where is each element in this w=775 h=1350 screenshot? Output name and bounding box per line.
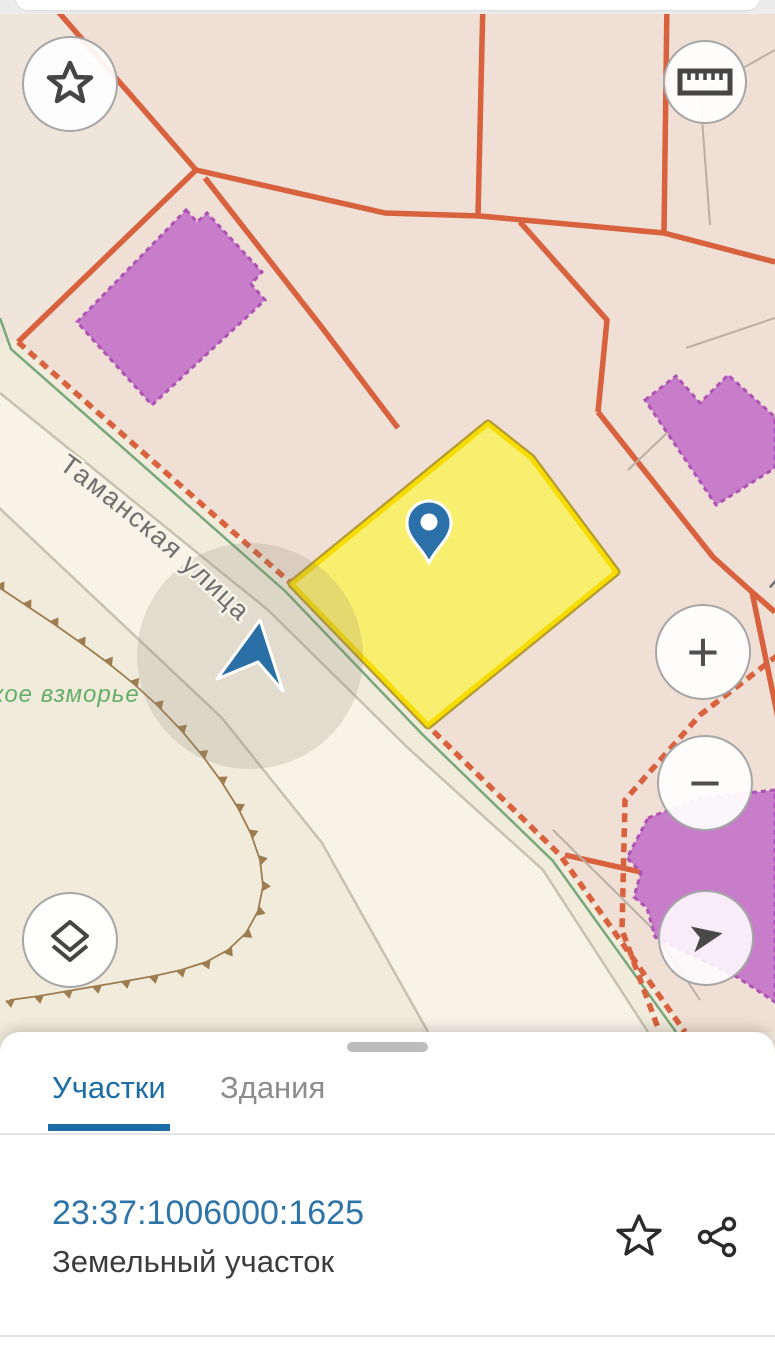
- zoom-in-button[interactable]: +: [655, 604, 751, 700]
- map-canvas[interactable]: Таманская улица Та кое взморье: [0, 0, 775, 1040]
- zoom-out-button[interactable]: −: [657, 735, 753, 831]
- tabs-divider: [0, 1133, 775, 1135]
- parcel-type-label: Земельный участок: [52, 1244, 334, 1280]
- bottom-sheet: Участки Здания 23:37:1006000:1625 Земель…: [0, 1032, 775, 1350]
- sheet-drag-handle[interactable]: [347, 1042, 428, 1052]
- active-tab-underline: [48, 1124, 170, 1131]
- cadastral-number-link[interactable]: 23:37:1006000:1625: [52, 1194, 364, 1233]
- minus-icon: −: [689, 755, 722, 811]
- result-divider: [0, 1335, 775, 1337]
- favorites-button[interactable]: [22, 36, 118, 132]
- share-parcel-button[interactable]: [691, 1211, 743, 1268]
- layers-icon: [43, 913, 97, 967]
- plus-icon: +: [687, 624, 720, 680]
- share-icon: [691, 1211, 743, 1263]
- measure-button[interactable]: [663, 40, 747, 124]
- search-bar-edge[interactable]: [16, 0, 759, 10]
- navigation-arrow-icon: [680, 912, 732, 964]
- star-icon: [42, 56, 98, 112]
- area-label: кое взморье: [0, 681, 140, 708]
- star-icon: [612, 1210, 666, 1264]
- ruler-icon: [676, 62, 734, 102]
- tab-buildings[interactable]: Здания: [220, 1070, 325, 1106]
- favorite-parcel-button[interactable]: [612, 1210, 666, 1269]
- locate-button[interactable]: [658, 890, 754, 986]
- app-screen: Таманская улица Та кое взморье + −: [0, 0, 775, 1350]
- top-bar: [0, 0, 775, 14]
- layers-button[interactable]: [22, 892, 118, 988]
- tab-parcels[interactable]: Участки: [52, 1070, 166, 1106]
